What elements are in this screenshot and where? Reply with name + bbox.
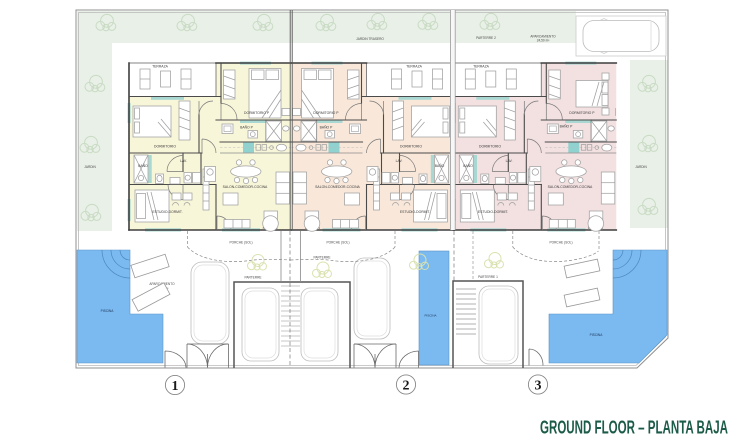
svg-text:BAÑO P: BAÑO P — [240, 125, 254, 130]
svg-text:PISCINA: PISCINA — [424, 314, 436, 318]
svg-text:BAÑO P: BAÑO P — [560, 124, 574, 129]
svg-text:PARTERRE: PARTERRE — [313, 256, 330, 260]
svg-text:JARDIN: JARDIN — [635, 165, 647, 169]
svg-text:GROUND FLOOR – PLANTA BAJA: GROUND FLOOR – PLANTA BAJA — [540, 417, 728, 438]
svg-text:PORCHE (SOL): PORCHE (SOL) — [326, 241, 349, 245]
svg-text:PORCHE (SOL): PORCHE (SOL) — [549, 241, 572, 245]
svg-text:BAÑO: BAÑO — [138, 163, 148, 168]
svg-text:DORMITORIO P: DORMITORIO P — [244, 111, 270, 115]
svg-text:ESTUDIO-DORMIT.: ESTUDIO-DORMIT. — [478, 210, 508, 214]
svg-text:1: 1 — [172, 379, 179, 394]
svg-text:SALON-COMEDOR-COCINA: SALON-COMEDOR-COCINA — [548, 185, 593, 189]
svg-text:TERRAZA: TERRAZA — [473, 65, 490, 69]
svg-text:2: 2 — [403, 378, 410, 393]
svg-text:PISCINA: PISCINA — [101, 309, 115, 313]
svg-text:TERRAZA: TERRAZA — [406, 65, 423, 69]
svg-text:DORMITORIO P: DORMITORIO P — [313, 111, 339, 115]
svg-text:BAÑO: BAÑO — [435, 163, 445, 168]
svg-text:BAÑO: BAÑO — [463, 163, 473, 168]
svg-text:DORMITORIO: DORMITORIO — [154, 145, 176, 149]
svg-text:LAV.: LAV. — [396, 159, 403, 163]
svg-text:ESTUDIO-DORMIT.: ESTUDIO-DORMIT. — [152, 210, 182, 214]
svg-text:JARDIN TRASERO: JARDIN TRASERO — [356, 37, 384, 41]
svg-text:BAÑO P: BAÑO P — [320, 125, 334, 130]
svg-text:DORMITORIO P: DORMITORIO P — [569, 111, 595, 115]
svg-text:DORMITORIO: DORMITORIO — [479, 145, 501, 149]
svg-text:LAV.: LAV. — [180, 159, 187, 163]
svg-text:JARDIN: JARDIN — [84, 165, 96, 169]
svg-text:LAV.: LAV. — [506, 159, 513, 163]
svg-text:PISCINA: PISCINA — [590, 333, 604, 337]
svg-text:3: 3 — [535, 378, 542, 393]
svg-text:24,50 m²: 24,50 m² — [537, 39, 550, 43]
svg-text:DORMITORIO: DORMITORIO — [400, 145, 422, 149]
svg-text:ESTUDIO-DORMIT.: ESTUDIO-DORMIT. — [400, 210, 430, 214]
svg-text:PARTERRE: PARTERRE — [244, 276, 261, 280]
svg-text:PARTERRE 1: PARTERRE 1 — [478, 275, 498, 279]
svg-text:SALON-COMEDOR-COCINA: SALON-COMEDOR-COCINA — [223, 185, 268, 189]
svg-text:SALON-COMEDOR-COCINA: SALON-COMEDOR-COCINA — [315, 185, 360, 189]
svg-text:TERRAZA: TERRAZA — [152, 65, 169, 69]
svg-text:PARTERRE 2: PARTERRE 2 — [476, 36, 496, 40]
svg-text:PORCHE (SOL): PORCHE (SOL) — [229, 241, 252, 245]
